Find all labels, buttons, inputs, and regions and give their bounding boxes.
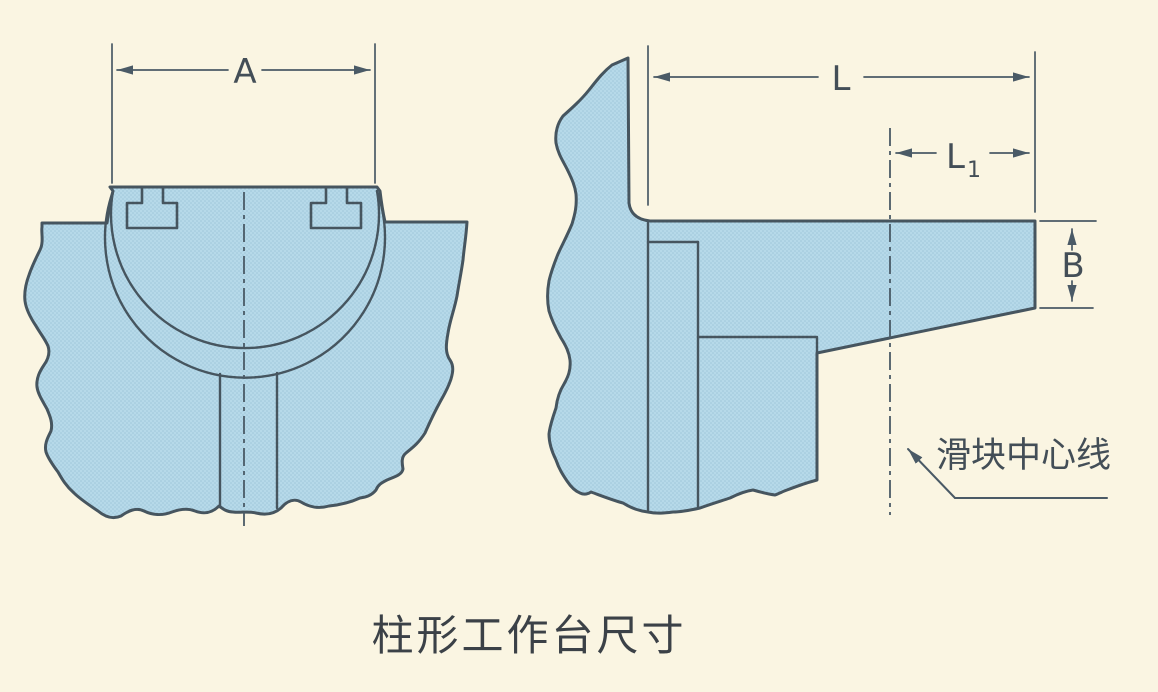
front-view — [25, 187, 467, 518]
drawing-canvas: A L L1 B 滑块中心线 柱形工作台尺寸 — [0, 0, 1158, 692]
dim-b-label: B — [1061, 246, 1084, 286]
dim-l-label: L — [832, 59, 851, 99]
front-view-body — [25, 187, 467, 518]
figure-caption: 柱形工作台尺寸 — [371, 611, 686, 660]
technical-drawing-page: A L L1 B 滑块中心线 柱形工作台尺寸 — [0, 0, 1158, 692]
slider-centerline-annotation: 滑块中心线 — [936, 436, 1111, 476]
dim-l1-label-main: L — [946, 137, 965, 177]
dim-a-label: A — [233, 52, 256, 92]
dim-l1-label-subscript: 1 — [967, 158, 981, 183]
